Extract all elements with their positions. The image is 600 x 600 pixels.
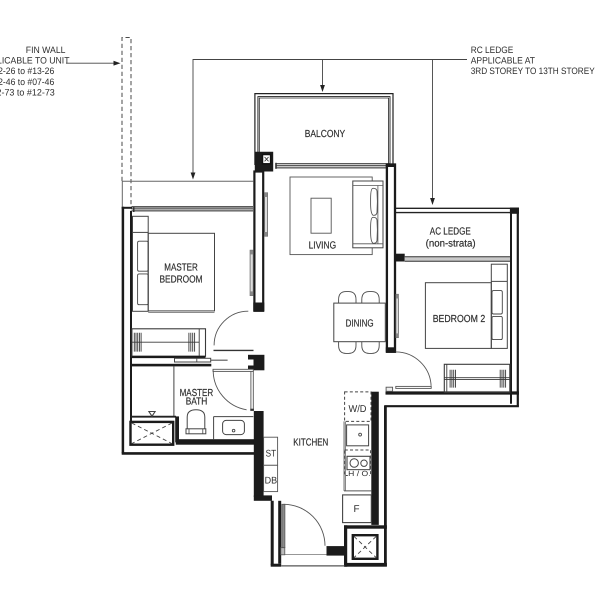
svg-text:#02-73 to #12-73: #02-73 to #12-73 [0,88,55,98]
svg-text:DB: DB [265,476,278,487]
svg-text:BEDROOM 2: BEDROOM 2 [433,314,486,325]
svg-text:#02-26 to #13-26: #02-26 to #13-26 [0,66,54,76]
svg-text:W/D: W/D [349,404,367,415]
svg-text:RC LEDGE: RC LEDGE [471,45,514,55]
svg-text:F: F [354,504,360,515]
svg-text:APPLICABLE TO UNIT: APPLICABLE TO UNIT [0,56,70,66]
svg-text:H / O: H / O [348,469,368,478]
svg-text:BATH: BATH [186,397,208,408]
svg-text:DINING: DINING [346,318,374,329]
svg-text:APPLICABLE AT: APPLICABLE AT [471,56,536,66]
svg-text:ST: ST [266,448,277,459]
svg-text:KITCHEN: KITCHEN [293,438,328,449]
svg-text:FIN WALL: FIN WALL [26,45,66,55]
svg-text:(non-strata): (non-strata) [426,239,476,250]
svg-text:LIVING: LIVING [309,241,337,252]
svg-text:BALCONY: BALCONY [305,129,346,140]
svg-text:3RD STOREY TO 13TH STOREY: 3RD STOREY TO 13TH STOREY [471,66,595,76]
svg-text:AC LEDGE: AC LEDGE [430,227,471,238]
svg-text:BEDROOM: BEDROOM [160,275,203,286]
svg-text:#02-46 to #07-46: #02-46 to #07-46 [0,77,54,87]
svg-text:MASTER: MASTER [164,262,198,273]
